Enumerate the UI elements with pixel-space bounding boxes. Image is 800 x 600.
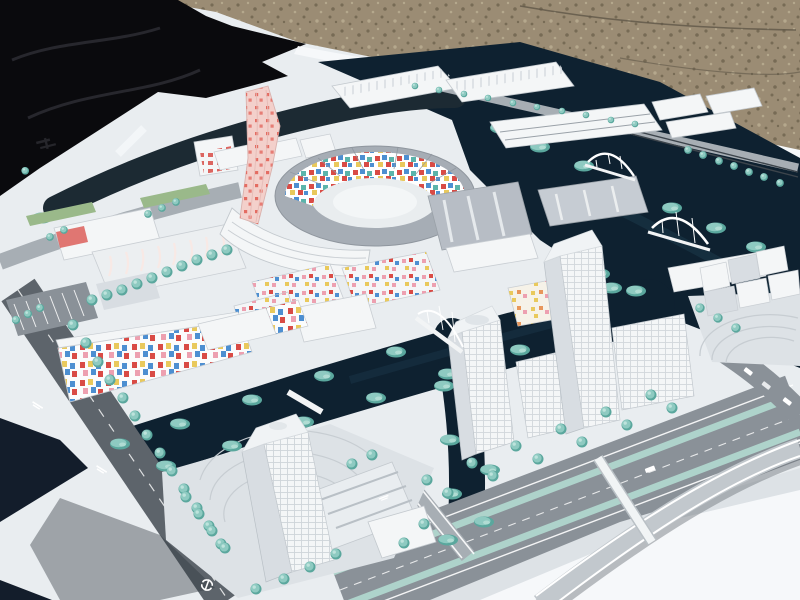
- model-tree: [21, 167, 29, 175]
- model-tree: [443, 488, 454, 499]
- model-tree: [251, 584, 262, 595]
- model-tree: [467, 458, 478, 469]
- model-tree: [713, 313, 722, 322]
- model-tree: [93, 357, 104, 368]
- shrub: [110, 439, 130, 450]
- model-tree: [622, 420, 633, 431]
- model-tree: [81, 338, 92, 349]
- model-tree: [422, 475, 433, 486]
- model-tree: [556, 424, 567, 435]
- model-tree: [577, 437, 588, 448]
- model-tree: [608, 117, 615, 124]
- shrub: [222, 441, 242, 452]
- model-tree: [730, 162, 738, 170]
- model-tree: [222, 245, 233, 256]
- shrub: [242, 395, 262, 406]
- shrub: [440, 435, 460, 446]
- model-tree: [194, 509, 205, 520]
- model-tree: [181, 492, 192, 503]
- model-tree: [46, 233, 54, 241]
- shrub: [170, 419, 190, 430]
- model-tree: [367, 450, 378, 461]
- model-tree: [399, 538, 410, 549]
- model-tree: [144, 210, 152, 218]
- model-tree: [534, 104, 541, 111]
- model-tree: [684, 146, 692, 154]
- model-tree: [510, 100, 517, 107]
- model-tree: [583, 112, 590, 119]
- model-tree: [147, 273, 158, 284]
- model-tree: [331, 549, 342, 560]
- model-tree: [142, 430, 153, 441]
- model-tree: [511, 441, 522, 452]
- model-tree: [102, 290, 113, 301]
- model-tree: [461, 91, 468, 98]
- model-tree: [12, 316, 20, 324]
- model-tree: [167, 466, 178, 477]
- model-tree: [776, 179, 784, 187]
- model-tree: [192, 255, 203, 266]
- model-tree: [436, 87, 443, 94]
- arena-plaza: [333, 185, 417, 219]
- model-tree: [412, 83, 419, 90]
- model-tree: [207, 250, 218, 261]
- shrub: [366, 393, 386, 404]
- model-tree: [745, 168, 753, 176]
- model-tree: [347, 459, 358, 470]
- model-tree: [646, 390, 657, 401]
- shrub: [438, 535, 458, 546]
- model-tree: [279, 574, 290, 585]
- model-tree: [731, 323, 740, 332]
- shrub: [434, 381, 454, 392]
- model-tree: [419, 519, 430, 530]
- model-tree: [68, 320, 79, 331]
- photo-frame: Photograph of a white architectural scal…: [0, 0, 800, 600]
- model-tree: [667, 403, 678, 414]
- model-tree: [36, 304, 44, 312]
- model-tree: [699, 151, 707, 159]
- shrub: [662, 203, 682, 214]
- model-tree: [105, 375, 116, 386]
- model-tree: [305, 562, 316, 573]
- shrub: [314, 371, 334, 382]
- shrub: [510, 345, 530, 356]
- model-tree: [632, 121, 639, 128]
- model-tree: [87, 295, 98, 306]
- model-tree: [24, 310, 32, 318]
- model-tree: [177, 261, 188, 272]
- model-tree: [601, 407, 612, 418]
- shrub: [626, 286, 646, 297]
- model-tree: [162, 267, 173, 278]
- model-tree: [60, 226, 68, 234]
- model-tree: [172, 198, 180, 206]
- shrub: [386, 347, 406, 358]
- model-tree: [559, 108, 566, 115]
- model-tree: [207, 526, 218, 537]
- model-tree: [130, 411, 141, 422]
- model-tree: [533, 454, 544, 465]
- model-tree: [220, 543, 231, 554]
- model-tree: [715, 157, 723, 165]
- model-tree: [488, 471, 499, 482]
- model-tree: [760, 173, 768, 181]
- model-tree: [117, 285, 128, 296]
- model-tree: [485, 95, 492, 102]
- scale-model-photo: Photograph of a white architectural scal…: [0, 0, 800, 600]
- shrub: [474, 517, 494, 528]
- model-tree: [158, 204, 166, 212]
- model-tree: [155, 448, 166, 459]
- tower-roof-detail: [269, 422, 287, 430]
- model-tree: [695, 303, 704, 312]
- model-tree: [118, 393, 129, 404]
- model-tree: [132, 279, 143, 290]
- shrub: [706, 223, 726, 234]
